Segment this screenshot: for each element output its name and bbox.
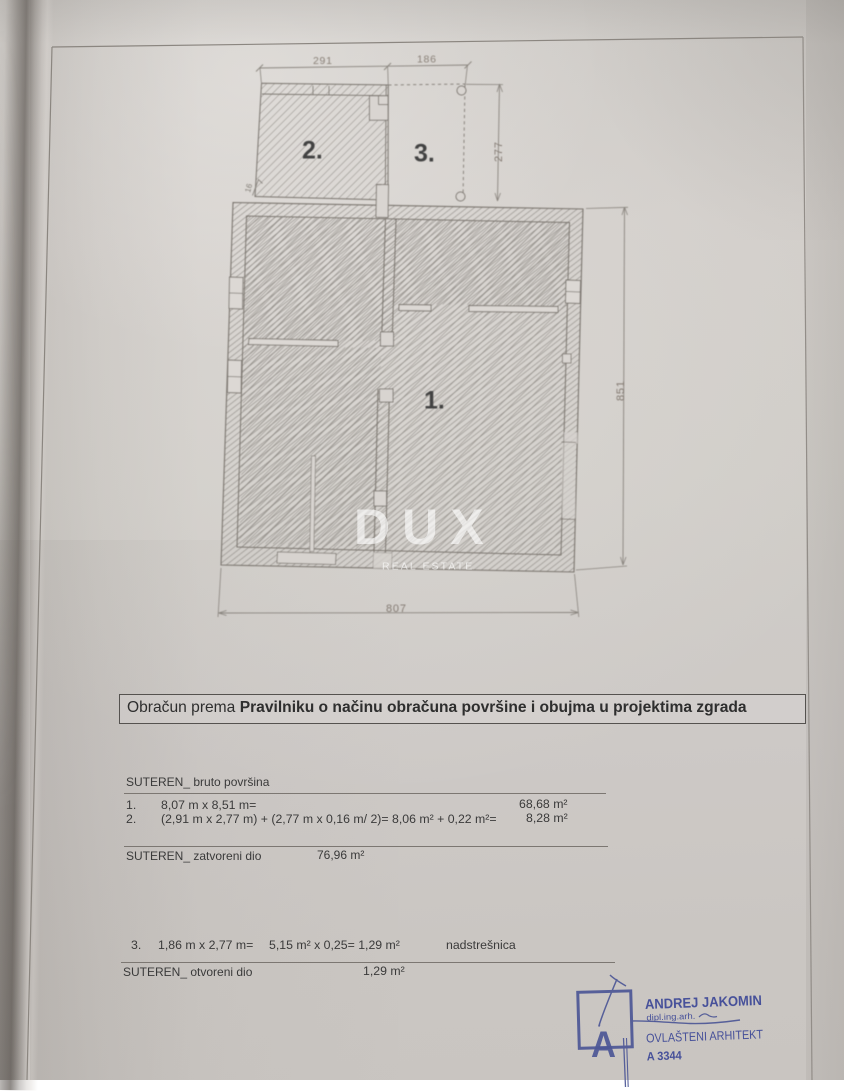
svg-text:851: 851 bbox=[615, 380, 627, 401]
svg-text:ANDREJ JAKOMIN: ANDREJ JAKOMIN bbox=[645, 992, 762, 1012]
svg-text:186: 186 bbox=[417, 54, 437, 66]
svg-text:277: 277 bbox=[493, 141, 505, 162]
svg-text:A: A bbox=[591, 1024, 616, 1065]
svg-text:3.: 3. bbox=[414, 140, 435, 168]
svg-text:A 3344: A 3344 bbox=[646, 1048, 682, 1063]
svg-text:16: 16 bbox=[243, 182, 254, 193]
svg-text:dipl.ing.arh.: dipl.ing.arh. bbox=[646, 1011, 695, 1023]
svg-text:807: 807 bbox=[386, 603, 407, 615]
svg-text:REAL ESTATE: REAL ESTATE bbox=[382, 561, 474, 573]
svg-text:OVLAŠTENI ARHITEKT: OVLAŠTENI ARHITEKT bbox=[646, 1026, 764, 1045]
svg-text:DUX: DUX bbox=[354, 499, 496, 555]
svg-text:291: 291 bbox=[313, 55, 333, 67]
svg-text:1.: 1. bbox=[424, 387, 445, 415]
svg-text:2.: 2. bbox=[302, 137, 323, 165]
